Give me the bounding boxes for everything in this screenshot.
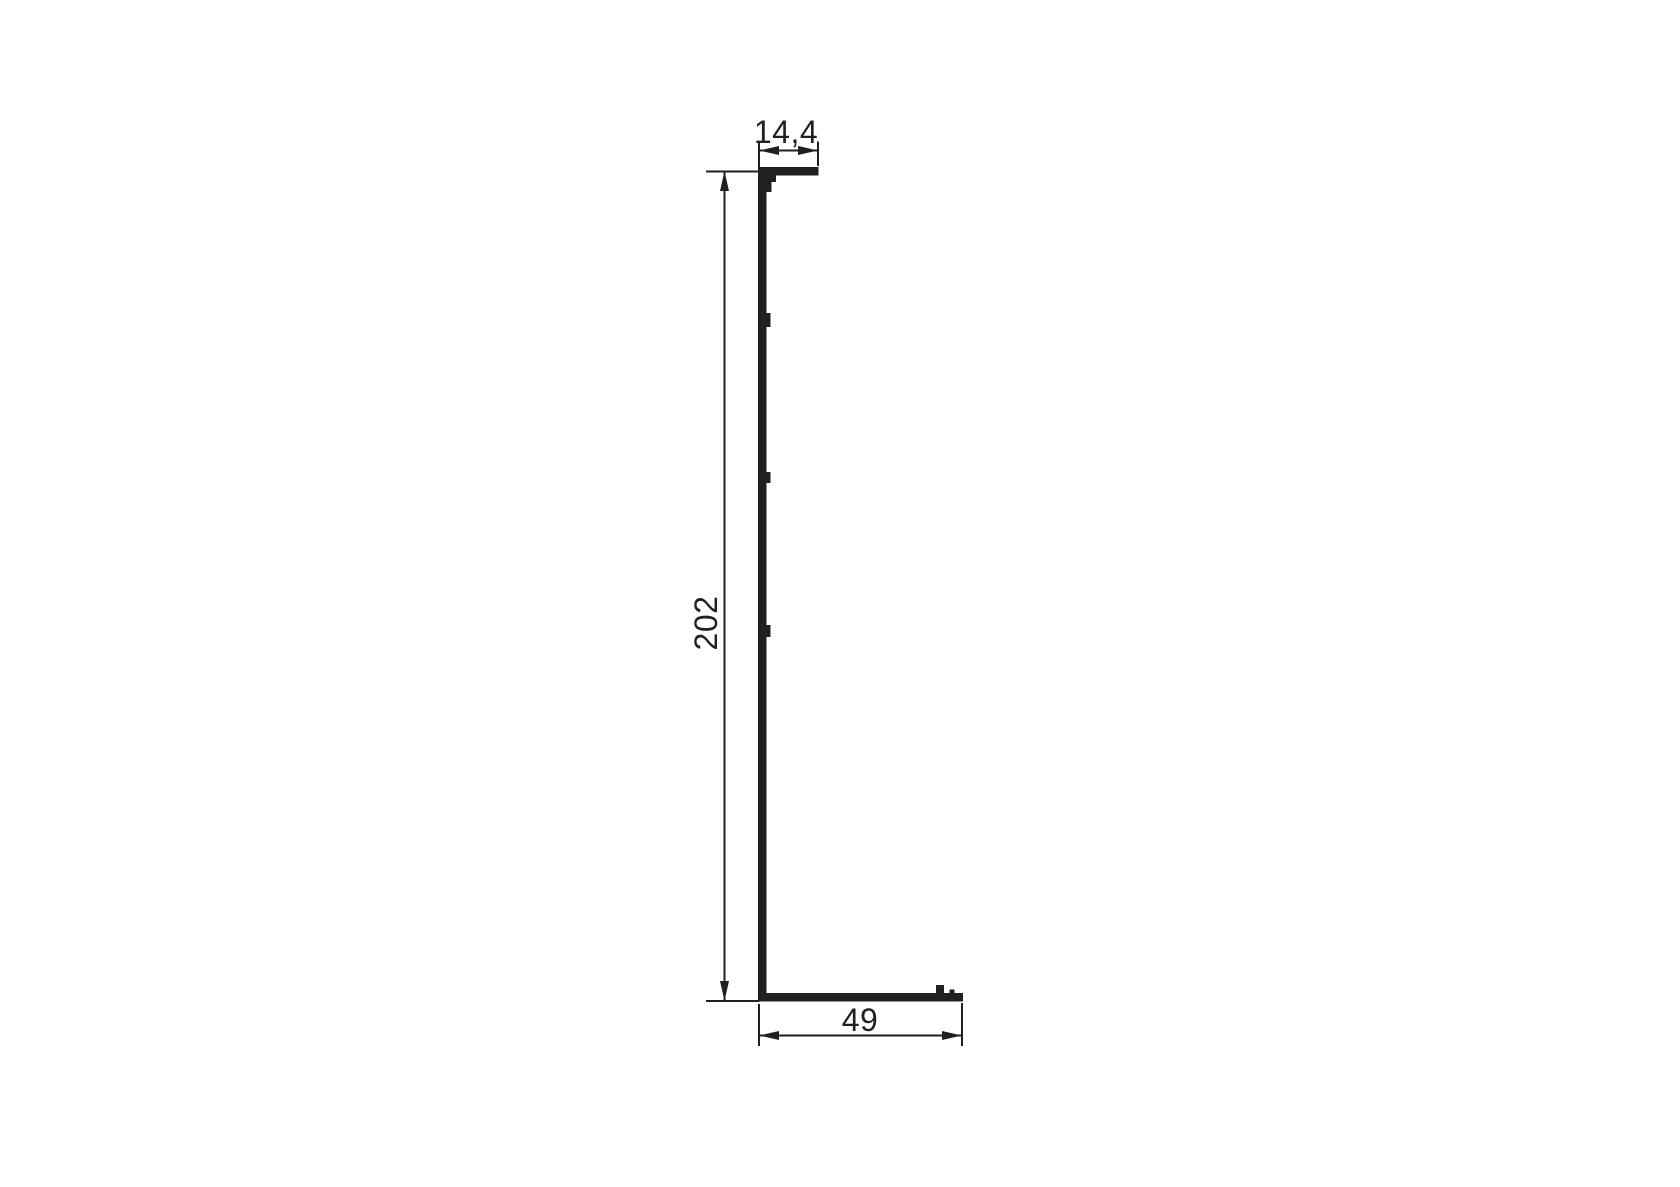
dimension-bottom-flange-width: 49 [759,1002,962,1046]
bottom-flange-tab-dot [950,990,955,994]
arrow-up-icon [720,171,729,191]
dimension-label-overall-height: 202 [688,596,724,651]
drawing-area: 14,4 202 49 [0,0,1680,1187]
dimension-label-bottom-flange-width: 49 [842,1002,879,1038]
dimension-top-flange-width: 14,4 [754,114,818,172]
arrow-right-icon [942,1031,962,1040]
arrow-left-icon [759,1031,779,1040]
dimension-label-top-flange-width: 14,4 [754,114,818,150]
arrow-down-icon [720,981,729,1001]
web-rib-middle [767,472,771,483]
profile-bottom-flange [758,993,963,1002]
dimension-overall-height: 202 [688,171,759,1001]
web-rib-lower [767,625,771,637]
profile-drawing-canvas: 14,4 202 49 [0,0,1680,1187]
top-flange-hook-detail [767,176,777,183]
web-rib-upper [767,313,771,327]
profile-web [758,167,767,1002]
profile-top-flange [758,167,819,176]
top-flange-hook-lip [767,182,772,192]
bottom-flange-tab [936,985,944,994]
profile-outline [758,167,963,1002]
